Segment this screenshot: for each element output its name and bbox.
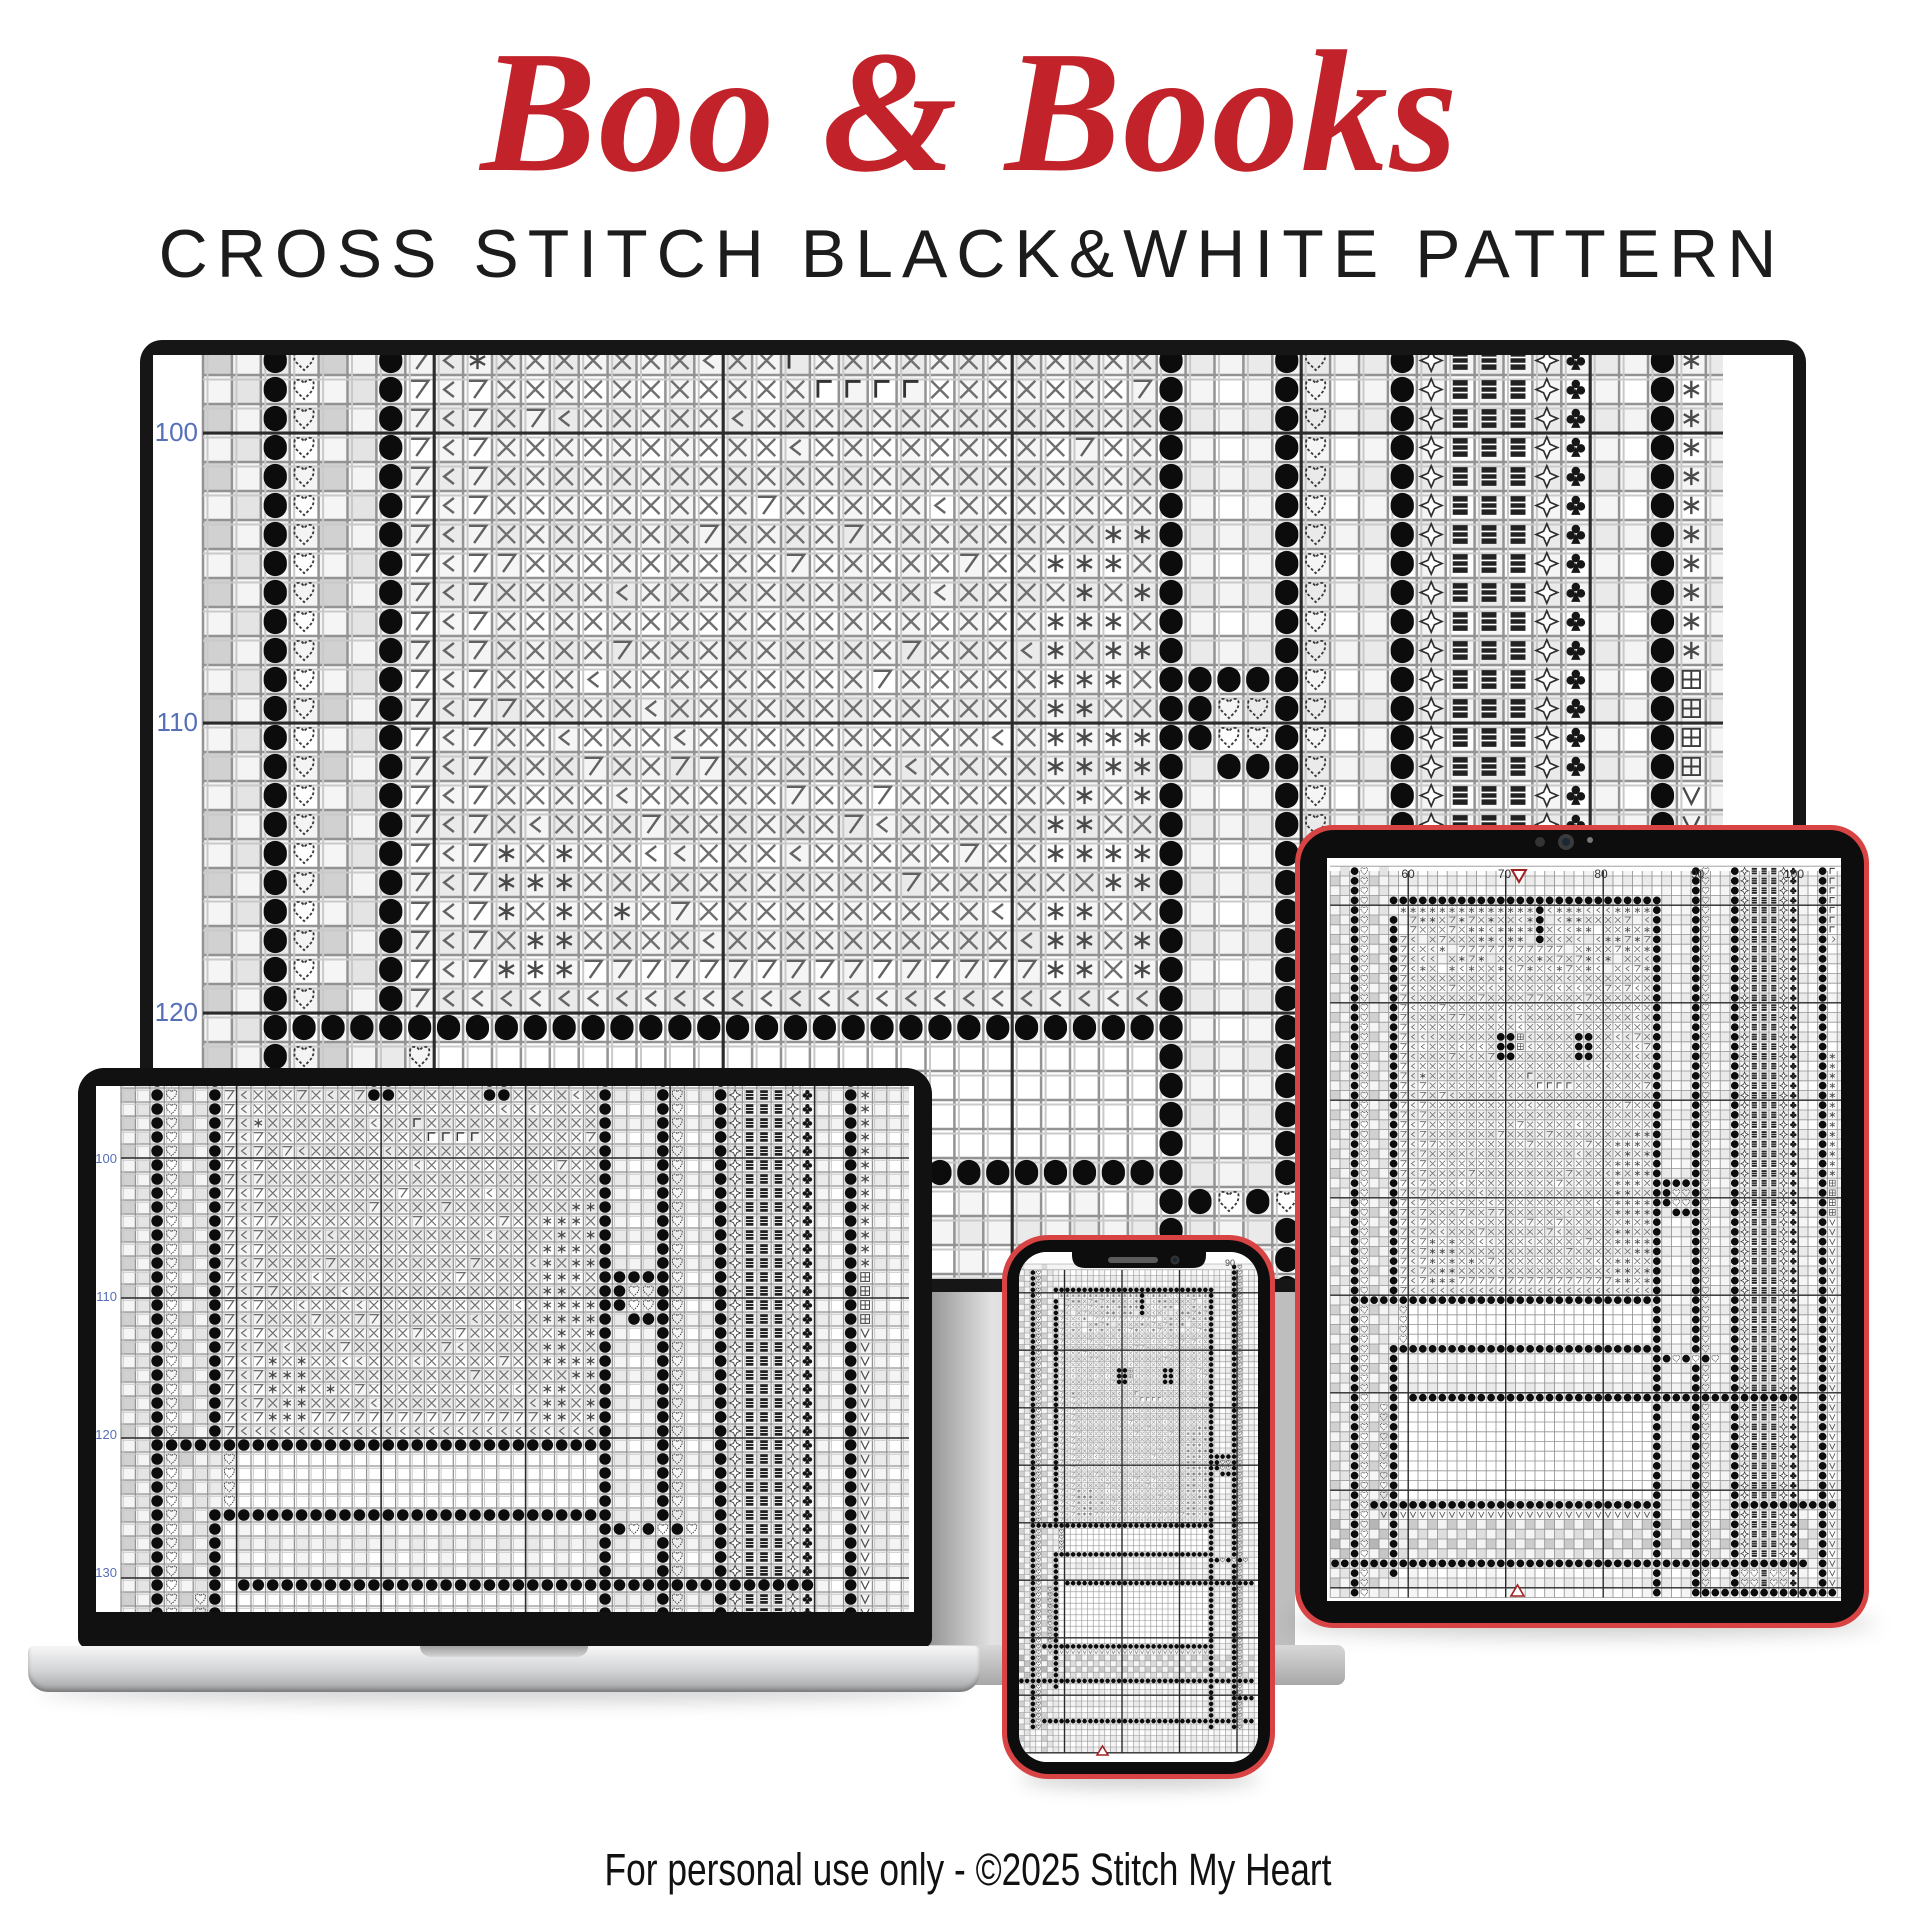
- svg-text:110: 110: [96, 1289, 117, 1304]
- svg-text:110: 110: [157, 707, 198, 737]
- svg-text:70: 70: [1498, 867, 1512, 881]
- svg-text:90: 90: [1691, 867, 1705, 881]
- svg-text:130: 130: [96, 1565, 117, 1580]
- svg-text:60: 60: [1401, 867, 1415, 881]
- svg-text:100: 100: [155, 417, 198, 447]
- svg-text:80: 80: [1594, 867, 1608, 881]
- svg-text:120: 120: [155, 997, 198, 1027]
- svg-text:120: 120: [96, 1427, 117, 1442]
- svg-text:90: 90: [1225, 1258, 1235, 1268]
- svg-text:100: 100: [96, 1151, 117, 1166]
- svg-text:100: 100: [1784, 867, 1804, 881]
